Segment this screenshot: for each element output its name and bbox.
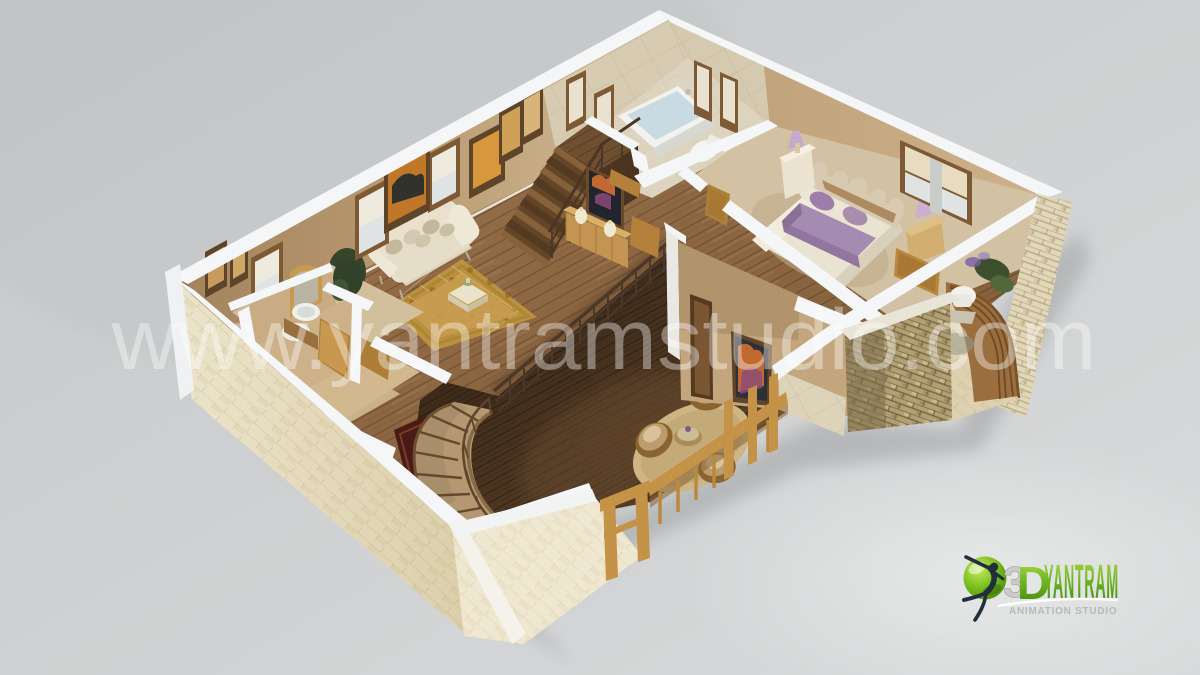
svg-text:www.yantramstudio.com: www.yantramstudio.com [110,292,1096,388]
svg-text:ANIMATION STUDIO: ANIMATION STUDIO [1009,606,1117,617]
